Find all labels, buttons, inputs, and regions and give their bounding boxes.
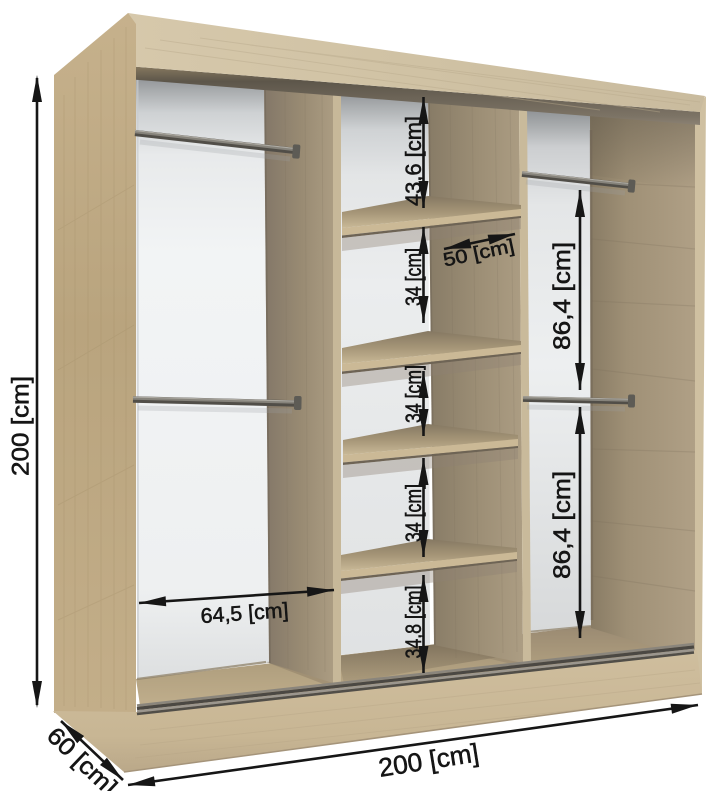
svg-text:34 [cm]: 34 [cm] (401, 365, 426, 423)
svg-text:34 [cm]: 34 [cm] (401, 484, 426, 542)
svg-text:86,4 [cm]: 86,4 [cm] (549, 242, 576, 350)
svg-text:34,8 [cm]: 34,8 [cm] (401, 586, 426, 659)
svg-text:200 [cm]: 200 [cm] (8, 376, 35, 476)
svg-text:86,4 [cm]: 86,4 [cm] (549, 471, 576, 579)
svg-text:34 [cm]: 34 [cm] (401, 248, 426, 306)
svg-text:43,6 [cm]: 43,6 [cm] (401, 116, 426, 206)
